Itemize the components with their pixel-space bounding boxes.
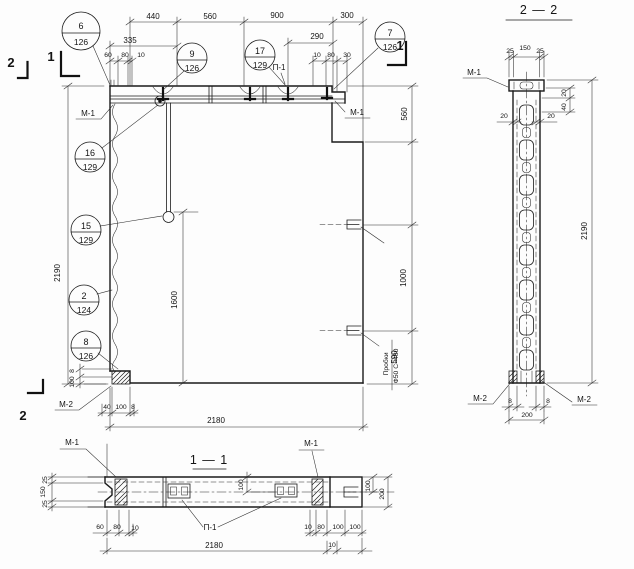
s22-dim-20r: 20 bbox=[547, 113, 555, 120]
anchor-t-4 bbox=[322, 88, 332, 99]
label-p1-s11: П-1 bbox=[204, 523, 217, 532]
note-plugs-line1: Пробки bbox=[382, 352, 390, 375]
balloon-17-den: 129 bbox=[253, 60, 267, 70]
s11-dim-60: 60 bbox=[96, 524, 104, 531]
s22-dim-200: 200 bbox=[521, 412, 533, 419]
balloon-6-den: 126 bbox=[74, 37, 88, 47]
technical-drawing-svg: 440 560 900 300 335 60 80 10 290 10 80 3… bbox=[0, 0, 634, 569]
label-m1-s11-right-leader bbox=[299, 450, 324, 477]
balloon-8-den: 126 bbox=[79, 351, 93, 361]
plug-leaders bbox=[361, 227, 384, 346]
plug-bottom bbox=[347, 326, 361, 335]
note-plugs-line2: Ф50 С=480 bbox=[393, 348, 400, 383]
s22-dim-150: 150 bbox=[519, 45, 531, 52]
balloon-7-leader bbox=[334, 48, 378, 89]
section-2-2: 2 — 2 bbox=[463, 3, 598, 424]
s11-end-anchor bbox=[344, 487, 358, 497]
anchor-t-3 bbox=[283, 88, 293, 100]
label-m1-main-right: М-1 bbox=[350, 108, 364, 117]
dim-30-r: 30 bbox=[343, 52, 351, 59]
s11-plate-1-inner-a bbox=[171, 487, 177, 495]
s22-dim-40side: 40 bbox=[561, 103, 568, 111]
s11-ltrio-dim bbox=[48, 473, 103, 511]
balloon-9-den: 126 bbox=[185, 63, 199, 73]
s11-plate-1 bbox=[168, 484, 190, 498]
s11-plate-2-inner-a bbox=[278, 487, 284, 495]
dim-10-r: 10 bbox=[313, 52, 321, 59]
balloon-7-den: 126 bbox=[383, 42, 397, 52]
s22-side-dim bbox=[542, 88, 575, 112]
dim-335: 335 bbox=[123, 36, 137, 45]
dim-1000: 1000 bbox=[399, 269, 408, 287]
cut-mark-2-top-line bbox=[18, 62, 28, 78]
dim-80-l: 80 bbox=[121, 52, 129, 59]
cut-mark-1-top-line bbox=[61, 52, 79, 76]
s11-dim-100a: 100 bbox=[332, 524, 344, 531]
sub-dimline bbox=[110, 41, 177, 86]
band-dividers bbox=[209, 86, 266, 103]
s11-dim-mid100: 100 bbox=[238, 479, 245, 491]
dim-2190-main: 2190 bbox=[53, 264, 62, 282]
dim-560-top: 560 bbox=[203, 12, 217, 21]
label-m1-s11-right: М-1 bbox=[304, 439, 318, 448]
panel-bottom-edge bbox=[110, 371, 363, 383]
cut-mark-2-bottom: 2 bbox=[19, 408, 26, 423]
drawing-sheet: 440 560 900 300 335 60 80 10 290 10 80 3… bbox=[0, 0, 634, 569]
label-p1-main: П-1 bbox=[273, 63, 286, 72]
section-1-1-title: 1 — 1 bbox=[190, 453, 228, 467]
dim-560-right: 560 bbox=[400, 107, 409, 121]
balloon-9: 9 126 bbox=[163, 43, 207, 90]
plug-centerlines bbox=[320, 225, 347, 331]
plug-top bbox=[347, 220, 361, 229]
s11-dim-150: 150 bbox=[40, 486, 47, 498]
s11-divider bbox=[163, 477, 166, 507]
s22-dim-8r: 8 bbox=[546, 398, 550, 405]
dim-1600: 1600 bbox=[170, 291, 179, 309]
label-m1-s11-left-leader bbox=[60, 449, 116, 477]
dim-100-pad: 100 bbox=[115, 404, 127, 411]
plug-symbols bbox=[320, 220, 384, 346]
cut-mark-1-top: 1 bbox=[47, 49, 54, 64]
dim-pad-8: 8 bbox=[69, 369, 76, 373]
dim-900: 900 bbox=[270, 11, 284, 20]
s11-dim-80r: 80 bbox=[317, 524, 325, 531]
balloon-8-num: 8 bbox=[83, 337, 88, 347]
balloon-6: 6 126 bbox=[62, 12, 110, 85]
rod-lines bbox=[167, 103, 171, 212]
rosette-dot bbox=[158, 99, 162, 103]
label-m1-main-left: М-1 bbox=[81, 109, 95, 118]
balloon-7-num: 7 bbox=[387, 28, 392, 38]
section-1-1: 1 — 1 25 150 25 100 100 200 bbox=[40, 438, 394, 554]
balloon-2-den: 124 bbox=[77, 305, 91, 315]
label-m1-s22-leader bbox=[463, 78, 508, 87]
rcol-dimline bbox=[348, 86, 418, 384]
cut-mark-1-right: 1 bbox=[396, 38, 403, 53]
dim-pad-100: 100 bbox=[69, 376, 76, 388]
hinge-rod-assembly bbox=[155, 96, 174, 223]
balloon-6-num: 6 bbox=[78, 21, 83, 31]
balloon-2-num: 2 bbox=[81, 291, 86, 301]
s11-dim-25b: 25 bbox=[42, 500, 49, 508]
dim-440: 440 bbox=[146, 12, 160, 21]
dim-2180-main: 2180 bbox=[207, 416, 225, 425]
s22-dim-2190: 2190 bbox=[580, 222, 589, 240]
panel-right-edge bbox=[332, 103, 363, 383]
s11-plate-1-inner-b bbox=[182, 487, 188, 495]
label-m1-s11-left: М-1 bbox=[65, 438, 79, 447]
dim-8-pad: 8 bbox=[131, 404, 135, 411]
balloon-16-den: 129 bbox=[83, 162, 97, 172]
panel-top-outline bbox=[110, 86, 345, 103]
s22-dim-20l: 20 bbox=[500, 113, 508, 120]
dim-300: 300 bbox=[340, 11, 354, 20]
s11-dim-80l: 80 bbox=[113, 524, 121, 531]
label-p1-s11-leaders bbox=[182, 498, 281, 527]
s11-dim-25a: 25 bbox=[42, 476, 49, 484]
balloon-9-num: 9 bbox=[189, 49, 194, 59]
label-m1-s22: М-1 bbox=[467, 68, 481, 77]
balloon-callouts: 6 126 9 126 17 129 7 126 16 bbox=[62, 12, 405, 369]
dim-290: 290 bbox=[310, 32, 324, 41]
label-m2-s22-left: М-2 bbox=[473, 394, 487, 403]
s22-dim-8l: 8 bbox=[508, 398, 512, 405]
padv-dim bbox=[80, 364, 112, 388]
s11-dim-end200: 200 bbox=[379, 488, 386, 500]
s11-plate-2 bbox=[275, 484, 297, 497]
s22-dim-25a: 25 bbox=[506, 48, 514, 55]
cut-mark-2-top: 2 bbox=[7, 55, 14, 70]
top-row-ext bbox=[130, 17, 363, 142]
corner-equal-ticks bbox=[111, 80, 114, 86]
balloon-9-leader bbox=[163, 71, 184, 90]
s11-dim-10l: 10 bbox=[131, 525, 139, 532]
dim-60: 60 bbox=[104, 52, 112, 59]
dim-10-l: 10 bbox=[137, 52, 145, 59]
balloon-16-num: 16 bbox=[85, 148, 95, 158]
s11-dim-end100: 100 bbox=[365, 480, 372, 492]
s11-dim-100b: 100 bbox=[349, 524, 361, 531]
pad-hatch bbox=[112, 371, 130, 384]
s22-dim-25b: 25 bbox=[536, 48, 544, 55]
anchor-t-2 bbox=[245, 88, 255, 100]
s11-plate-2-inner-b bbox=[289, 487, 295, 495]
balloon-15-num: 15 bbox=[81, 221, 91, 231]
break-wavy-line bbox=[113, 104, 118, 372]
main-labels: М-1 М-1 М-2 П-1 Пробки Ф50 С=480 bbox=[55, 63, 400, 410]
s11-dim-2180: 2180 bbox=[205, 541, 223, 550]
label-m2-s22-right: М-2 bbox=[577, 395, 591, 404]
cut-mark-2-bottom-line bbox=[28, 380, 43, 393]
s11-br-dim bbox=[305, 510, 366, 536]
s11-dim-b10: 10 bbox=[328, 542, 336, 549]
section-2-2-title: 2 — 2 bbox=[520, 3, 558, 17]
balloon-17-num: 17 bbox=[255, 46, 265, 56]
width-dim bbox=[105, 387, 368, 431]
balloon-8-leader bbox=[98, 353, 118, 369]
main-elevation-view bbox=[110, 80, 384, 384]
rod-end-circle bbox=[163, 212, 174, 223]
s22-height-dim bbox=[547, 80, 598, 383]
s22-dim-20side: 20 bbox=[561, 89, 568, 97]
balloon-8: 8 126 bbox=[71, 331, 118, 369]
label-m2-main: М-2 bbox=[59, 400, 73, 409]
bearing-pad bbox=[112, 371, 130, 384]
anchor-symbols bbox=[153, 87, 332, 100]
balloon-15-den: 129 bbox=[79, 235, 93, 245]
dim-80-r: 80 bbox=[327, 52, 335, 59]
balloon-2: 2 124 bbox=[69, 285, 112, 315]
s11-dim-10r: 10 bbox=[304, 524, 312, 531]
